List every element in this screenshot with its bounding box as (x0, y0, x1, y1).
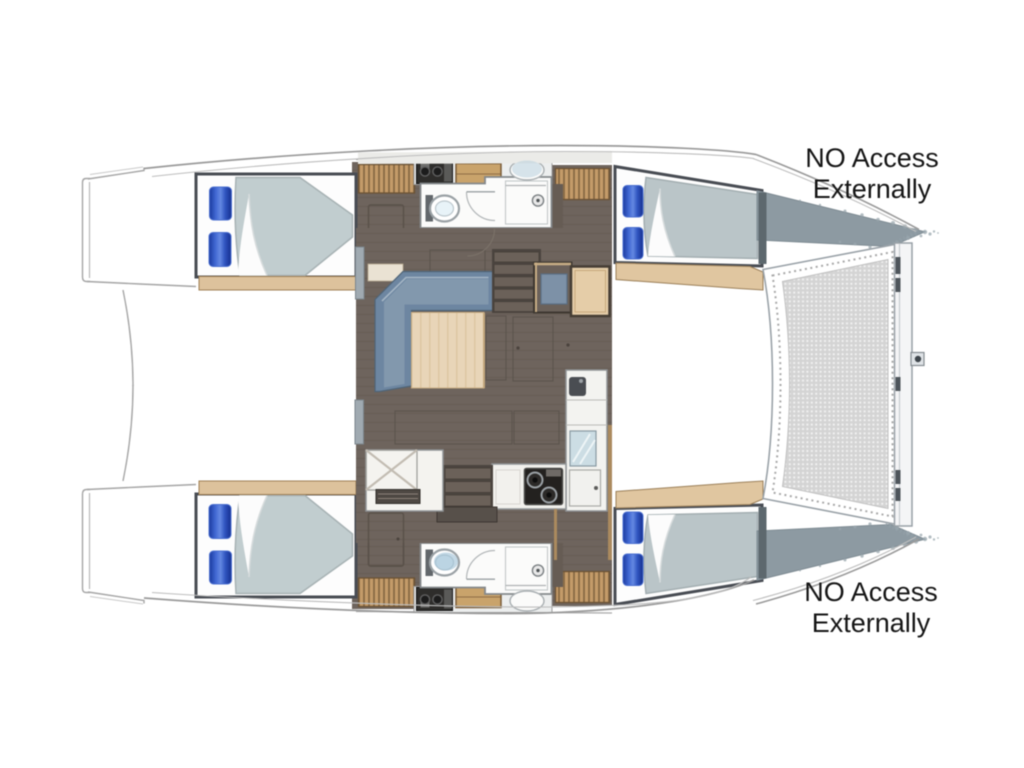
svg-text:Externally: Externally (813, 174, 932, 204)
svg-text:NO Access: NO Access (805, 143, 939, 173)
svg-text:Externally: Externally (812, 608, 931, 638)
svg-text:NO Access: NO Access (804, 577, 938, 607)
